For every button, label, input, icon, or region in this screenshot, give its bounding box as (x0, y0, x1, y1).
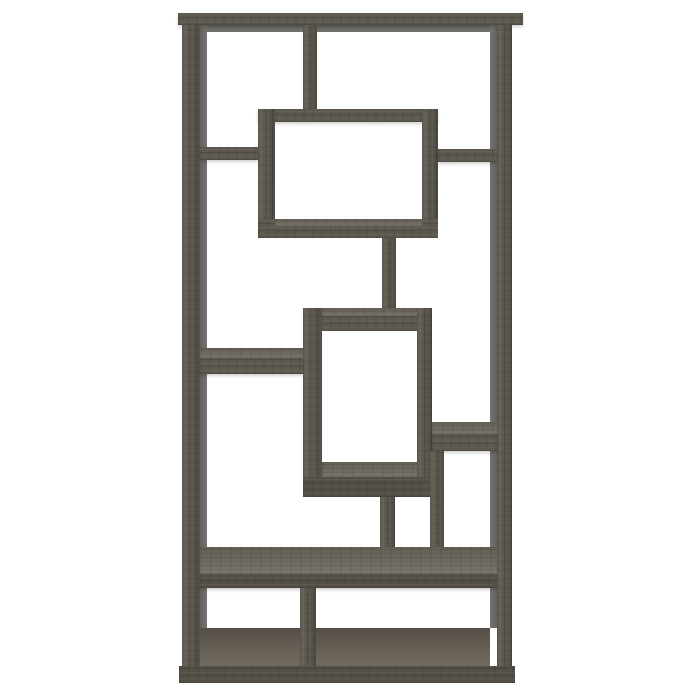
base-front-board (179, 666, 515, 683)
middle-box-top-rail (303, 316, 432, 331)
right-side-panel (497, 25, 512, 670)
upper-right-shelf (438, 149, 497, 162)
upper-display-box (258, 109, 438, 238)
lower-long-shelf (200, 547, 497, 588)
right-small-shelf-surface (432, 422, 497, 434)
mid-center-divider (382, 238, 396, 308)
lower-long-shelf-surface (200, 547, 497, 574)
left-side-panel (182, 25, 200, 670)
middle-box-top-surface (303, 308, 432, 316)
middle-display-box (303, 308, 432, 497)
lower-long-shelf-edge (200, 574, 497, 588)
bottom-center-divider (300, 588, 316, 668)
left-mid-shelf-edge (200, 358, 303, 374)
right-small-shelf-edge (432, 434, 497, 451)
base-floor-surface (200, 628, 490, 668)
upper-box-shelf-surface (275, 219, 422, 226)
middle-box-bottom-rail (303, 477, 432, 497)
product-image (0, 0, 700, 700)
top-board (178, 13, 523, 25)
top-board-underside (200, 25, 491, 32)
center-lower-divider (380, 497, 395, 549)
right-panel-inner-face (490, 25, 497, 628)
upper-left-shelf (200, 147, 258, 160)
left-panel-inner-face (200, 25, 207, 628)
middle-box-shelf-surface (322, 462, 417, 477)
upper-box-top-rail (258, 109, 438, 122)
middle-box-left-stile (303, 308, 322, 497)
top-center-divider (303, 25, 317, 109)
left-mid-shelf-surface (200, 348, 303, 358)
right-lower-divider (430, 451, 444, 552)
left-mid-shelf (200, 348, 303, 374)
right-small-shelf (432, 422, 497, 451)
